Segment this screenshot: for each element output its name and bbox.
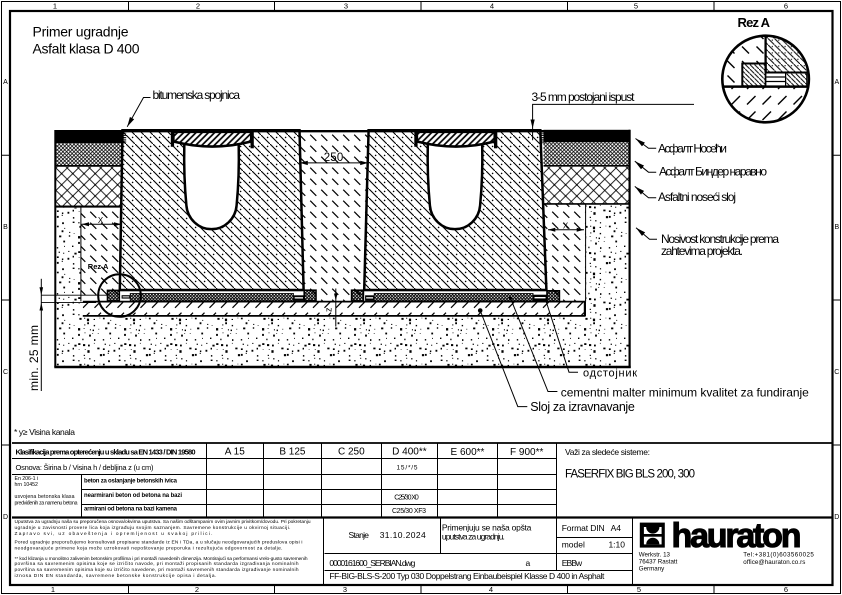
svg-text:iznosa DIN EN standarda, savre: iznosa DIN EN standarda, savremene beton… [15,573,217,579]
svg-text:X: X [98,216,104,225]
svg-text:Osnova: Širina b / Visina h /: Osnova: Širina b / Visina h / debljina z… [16,463,155,472]
svg-text:F 900**: F 900** [510,447,543,458]
svg-text:Rez A: Rez A [738,15,771,30]
svg-text:76437 Rastatt: 76437 Rastatt [639,559,678,566]
svg-text:D: D [3,514,8,521]
svg-text:Uputstva za ugradnju naša su p: Uputstva za ugradnju naša su preporučena… [15,519,311,525]
svg-text:površina sa savremenim opisima: površina sa savremenim opisima koje se i… [15,561,299,567]
svg-text:neodgovarajuće primene koja mo: neodgovarajuće primene koja može uzrokov… [15,546,283,552]
svg-text:min. 25 mm: min. 25 mm [27,325,41,391]
svg-text:Zapravo svi, uz obaveštenja i: Zapravo svi, uz obaveštenja i opremljeno… [15,531,213,537]
svg-text:predviđenih za namenu betona: predviđenih za namenu betona [15,501,78,507]
svg-text:Werkstr. 13: Werkstr. 13 [639,552,671,559]
svg-text:3-5 mm postojani ispust: 3-5 mm postojani ispust [532,90,636,104]
svg-text:4: 4 [490,2,494,11]
svg-text:A: A [3,79,8,86]
svg-text:6: 6 [784,585,788,594]
svg-text:31.10.2024: 31.10.2024 [380,530,426,540]
svg-text:X: X [563,221,569,230]
svg-text:Асфалт Биндер наравно: Асфалт Биндер наравно [659,165,767,179]
svg-text:4: 4 [489,585,493,594]
svg-text:15/*/5: 15/*/5 [397,465,418,472]
svg-text:* y≥ Visina kanala: * y≥ Visina kanala [14,427,75,437]
svg-text:C25/30 XF3: C25/30 XF3 [392,508,426,515]
svg-text:C: C [834,369,839,376]
svg-text:zahtevima projekta.: zahtevima projekta. [661,244,743,258]
svg-text:model: model [562,540,585,550]
svg-text:Važi za sledeće sisteme:: Važi za sledeće sisteme: [565,447,650,457]
svg-text:usvojena betonska klasa: usvojena betonska klasa [15,494,75,500]
svg-text:Tel:+381(0)603560025: Tel:+381(0)603560025 [743,552,814,559]
svg-text:1: 1 [53,2,57,11]
svg-text:B: B [3,224,8,231]
svg-text:FF-BIG-BLS-S-200 Typ 030 Doppe: FF-BIG-BLS-S-200 Typ 030 Doppelstrang Ei… [329,571,605,581]
svg-text:C: C [3,369,8,376]
svg-text:Asfalt klasa D 400: Asfalt klasa D 400 [33,41,140,57]
svg-text:1: 1 [51,585,55,594]
svg-text:Germany: Germany [639,566,665,573]
svg-text:3: 3 [343,585,347,594]
svg-text:250: 250 [324,152,344,164]
svg-text:armirani od betona na bazi kam: armirani od betona na bazi kamena [84,506,178,512]
svg-text:D 400**: D 400** [392,446,427,457]
svg-text:D: D [834,514,839,521]
svg-text:E 600**: E 600** [451,447,485,458]
svg-text:C25/30 X0: C25/30 X0 [394,495,419,502]
svg-text:Primer ugradnje: Primer ugradnje [33,24,129,40]
svg-text:5: 5 [637,585,641,594]
svg-text:hauraton: hauraton [672,517,802,555]
svg-text:ugradnje u zavisnosti provere: ugradnje u zavisnosti provere lica koja … [15,525,291,531]
svg-text:Асфалт Носећи: Асфалт Носећи [658,142,727,156]
svg-text:0000161600_SERBIAN.dwg: 0000161600_SERBIAN.dwg [329,558,415,568]
svg-text:površina sa savremenim opisima: površina sa savremenim opisima koje su i… [15,567,299,573]
svg-text:nearmirani beton od betona na: nearmirani beton od betona na bazi [84,493,182,499]
svg-text:Sloj za izravnavanje: Sloj za izravnavanje [530,400,635,414]
svg-text:A: A [834,79,839,86]
svg-text:FASERFIX BIG BLS 200, 300: FASERFIX BIG BLS 200, 300 [565,469,695,481]
svg-text:A4: A4 [611,523,622,533]
svg-text:Format DIN: Format DIN [562,523,605,533]
svg-text:cementni malter minimum kvalit: cementni malter minimum kvalitet za fund… [561,386,809,400]
svg-text:EBBw: EBBw [562,558,583,568]
svg-text:6: 6 [784,2,788,11]
svg-text:Asfaltni noseći sloj: Asfaltni noseći sloj [658,190,736,204]
svg-text:5: 5 [634,2,638,11]
svg-text:bitumenska spojnica: bitumenska spojnica [153,88,241,102]
svg-text:1:10: 1:10 [608,540,625,550]
svg-text:2: 2 [196,2,200,11]
svg-text:Stanje: Stanje [349,530,370,540]
svg-text:Rez A: Rez A [88,262,109,271]
svg-text:3: 3 [344,2,348,11]
svg-text:z: z [324,307,334,312]
svg-text:office@hauraton.co.rs: office@hauraton.co.rs [743,559,805,566]
svg-text:A 15: A 15 [225,446,245,457]
svg-text:одстојник: одстојник [583,368,637,380]
svg-text:2: 2 [195,585,199,594]
svg-text:C 250: C 250 [338,446,365,457]
svg-text:uputstva za ugradnju.: uputstva za ugradnju. [442,531,505,541]
svg-text:beton za oslanjanje betonskih: beton za oslanjanje betonskih ivica [84,478,178,484]
svg-text:hrn 10452: hrn 10452 [15,482,38,488]
svg-text:Klasifikacija prema opterećenj: Klasifikacija prema opterećenju u skladu… [16,448,196,457]
svg-text:a: a [526,558,531,568]
svg-text:Pored ugradnje preporučujemo k: Pored ugradnje preporučujemo konsultovat… [15,540,303,546]
svg-text:B: B [834,224,839,231]
svg-text:B 125: B 125 [279,446,306,457]
